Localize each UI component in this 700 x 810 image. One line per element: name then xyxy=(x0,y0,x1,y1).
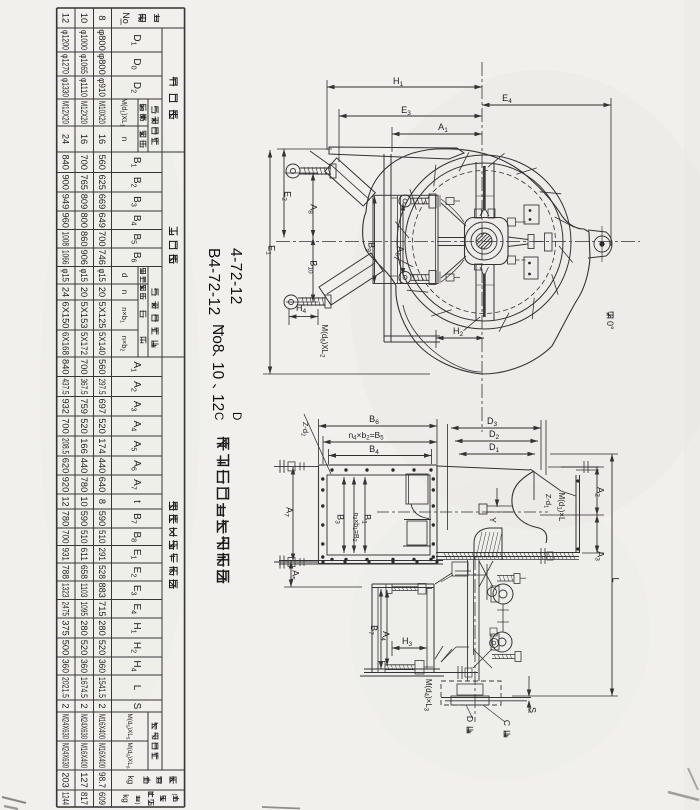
svg-text:520: 520 xyxy=(79,640,89,656)
svg-text:840: 840 xyxy=(61,359,71,375)
svg-text:(: ( xyxy=(171,794,177,796)
svg-text:510: 510 xyxy=(97,530,107,544)
svg-text:208.5: 208.5 xyxy=(61,438,71,454)
svg-text:1066: 1066 xyxy=(61,250,71,265)
svg-text:2021.5: 2021.5 xyxy=(61,677,71,698)
svg-text:No8: No8 xyxy=(209,324,226,352)
svg-text:5X125: 5X125 xyxy=(97,302,107,329)
svg-text:φ1270: φ1270 xyxy=(61,54,71,74)
svg-text:440: 440 xyxy=(79,458,89,474)
svg-text:360: 360 xyxy=(79,659,89,673)
svg-text:669: 669 xyxy=(97,194,107,210)
svg-text:949: 949 xyxy=(61,194,71,210)
svg-text:174: 174 xyxy=(97,438,107,454)
svg-text:M24X630: M24X630 xyxy=(61,743,71,768)
svg-text:B4-72-12: B4-72-12 xyxy=(205,248,222,316)
svg-text:746: 746 xyxy=(97,249,107,265)
svg-text:n3×b1=B2: n3×b1=B2 xyxy=(351,513,359,542)
svg-text:φ1065: φ1065 xyxy=(79,54,89,74)
svg-text:920: 920 xyxy=(61,477,71,493)
svg-text:840: 840 xyxy=(61,154,71,170)
svg-text:12: 12 xyxy=(209,394,226,411)
svg-text:280: 280 xyxy=(97,620,107,636)
svg-text:8: 8 xyxy=(97,15,107,20)
svg-text:6X150: 6X150 xyxy=(61,302,71,329)
svg-text:297.5: 297.5 xyxy=(97,379,107,395)
svg-text:780: 780 xyxy=(79,477,89,493)
svg-text:2: 2 xyxy=(61,703,71,708)
svg-text:24: 24 xyxy=(61,287,71,297)
svg-text:440: 440 xyxy=(97,458,107,474)
svg-text:620: 620 xyxy=(61,458,71,474)
svg-text:L: L xyxy=(611,577,621,582)
svg-text:C: C xyxy=(212,412,224,420)
svg-text:1103: 1103 xyxy=(79,583,89,598)
svg-text:280: 280 xyxy=(79,620,89,636)
svg-text:900: 900 xyxy=(61,174,71,190)
svg-text:931: 931 xyxy=(61,547,71,561)
svg-text:D: D xyxy=(230,412,242,420)
svg-text:780: 780 xyxy=(61,511,71,527)
svg-text:S: S xyxy=(528,707,538,713)
svg-text:611: 611 xyxy=(79,547,89,561)
svg-text:M(d5)XL5: M(d5)XL5 xyxy=(126,714,132,741)
svg-text:1323: 1323 xyxy=(61,583,71,598)
svg-text:1008: 1008 xyxy=(61,232,71,247)
svg-text:500: 500 xyxy=(61,640,71,656)
svg-text:715: 715 xyxy=(97,601,107,617)
svg-text:kg: kg xyxy=(126,776,135,784)
svg-text:d: d xyxy=(120,273,129,277)
svg-text:625: 625 xyxy=(97,174,107,190)
svg-text:883: 883 xyxy=(97,582,107,598)
svg-text:375: 375 xyxy=(61,620,71,636)
svg-text:1095: 1095 xyxy=(79,602,89,617)
svg-text:M16X400: M16X400 xyxy=(97,743,107,768)
svg-text:No: No xyxy=(121,12,131,24)
svg-text:t: t xyxy=(131,500,142,503)
svg-text:860: 860 xyxy=(79,231,89,247)
svg-text:M12X20: M12X20 xyxy=(61,101,71,124)
svg-text:L: L xyxy=(131,685,142,691)
svg-text:765: 765 xyxy=(79,174,89,190)
svg-text:360: 360 xyxy=(61,659,71,673)
svg-text:203: 203 xyxy=(61,772,71,788)
svg-text:20: 20 xyxy=(97,287,107,297)
svg-text:560: 560 xyxy=(97,154,107,170)
svg-text:6X168: 6X168 xyxy=(61,332,71,355)
svg-text:5X153: 5X153 xyxy=(79,302,89,329)
svg-text:590: 590 xyxy=(97,511,107,527)
svg-text:649: 649 xyxy=(97,212,107,228)
svg-text:16: 16 xyxy=(97,134,107,144)
svg-text:D: D xyxy=(465,716,475,722)
svg-text:906: 906 xyxy=(79,249,89,265)
svg-text:700: 700 xyxy=(79,359,89,375)
svg-text:1674.5: 1674.5 xyxy=(79,677,89,698)
svg-text:817: 817 xyxy=(79,792,89,805)
svg-text:520: 520 xyxy=(97,640,107,656)
svg-text:M(d4)×L3: M(d4)×L3 xyxy=(423,679,434,712)
svg-text:10: 10 xyxy=(79,13,89,23)
svg-text:12: 12 xyxy=(61,496,71,506)
svg-text:291: 291 xyxy=(97,547,107,561)
svg-text:φ1330: φ1330 xyxy=(61,78,71,97)
svg-text:759: 759 xyxy=(79,398,89,414)
svg-text:M24X630: M24X630 xyxy=(79,714,89,739)
svg-text:φ1110: φ1110 xyxy=(79,78,89,97)
svg-text:1244: 1244 xyxy=(61,792,71,805)
svg-text:590: 590 xyxy=(79,511,89,527)
svg-text:M16X400: M16X400 xyxy=(97,714,107,739)
svg-text:16: 16 xyxy=(79,134,89,144)
svg-text:kg: kg xyxy=(121,794,130,802)
svg-text:800: 800 xyxy=(79,212,89,228)
svg-text:φ15: φ15 xyxy=(79,268,89,282)
svg-text:12: 12 xyxy=(61,13,71,23)
svg-text:8: 8 xyxy=(97,499,107,504)
svg-text:700: 700 xyxy=(61,418,71,434)
svg-text:M10X20: M10X20 xyxy=(97,101,107,124)
svg-text:700: 700 xyxy=(97,231,107,247)
svg-text:520: 520 xyxy=(79,418,89,434)
svg-text:520: 520 xyxy=(97,418,107,434)
svg-text:2: 2 xyxy=(97,703,107,708)
svg-text:5X172: 5X172 xyxy=(79,332,89,355)
svg-text:20: 20 xyxy=(79,287,89,297)
svg-text:M12X20: M12X20 xyxy=(79,101,89,124)
svg-text:C: C xyxy=(502,720,512,726)
svg-text:φ910: φ910 xyxy=(97,78,107,97)
svg-text:609: 609 xyxy=(97,792,107,805)
svg-text:24: 24 xyxy=(61,134,71,144)
svg-text:528: 528 xyxy=(97,565,107,579)
svg-text:φ15: φ15 xyxy=(97,268,107,282)
svg-text:2475: 2475 xyxy=(61,602,71,617)
svg-text:960: 960 xyxy=(61,212,71,228)
svg-text:M24X630: M24X630 xyxy=(61,714,71,739)
svg-text:φ1200: φ1200 xyxy=(61,30,71,50)
svg-text:φ15: φ15 xyxy=(61,268,71,282)
svg-text:φ800: φ800 xyxy=(97,53,107,75)
svg-text:n: n xyxy=(120,290,129,294)
svg-text:166: 166 xyxy=(79,438,89,454)
svg-text:437.5: 437.5 xyxy=(61,379,71,395)
svg-text:S: S xyxy=(131,703,142,710)
svg-text:98.7: 98.7 xyxy=(97,772,107,788)
svg-text:M(d6)XL2: M(d6)XL2 xyxy=(319,325,330,359)
svg-text:510: 510 xyxy=(79,530,89,544)
svg-text:700: 700 xyxy=(79,154,89,170)
svg-text:4-72-12: 4-72-12 xyxy=(227,248,244,305)
svg-text:M(d6)XL6: M(d6)XL6 xyxy=(126,743,132,770)
svg-text:Y: Y xyxy=(488,517,498,523)
svg-text:M16X400: M16X400 xyxy=(79,743,89,768)
svg-text:788: 788 xyxy=(61,565,71,579)
svg-text:127: 127 xyxy=(79,772,89,788)
svg-text:640: 640 xyxy=(97,477,107,493)
svg-text:10: 10 xyxy=(209,362,226,380)
svg-text:n: n xyxy=(120,137,129,141)
svg-text:809: 809 xyxy=(79,194,89,210)
svg-text:φ800: φ800 xyxy=(97,29,107,51)
svg-text:932: 932 xyxy=(61,398,71,414)
svg-text:5X140: 5X140 xyxy=(97,332,107,355)
svg-text:): ) xyxy=(134,803,140,805)
svg-text:2: 2 xyxy=(79,703,89,708)
svg-text:1541.5: 1541.5 xyxy=(97,677,107,698)
svg-text:φ1000: φ1000 xyxy=(79,30,89,50)
svg-text:367.5: 367.5 xyxy=(79,379,89,395)
svg-text:697: 697 xyxy=(97,398,107,414)
svg-text:658: 658 xyxy=(79,565,89,579)
svg-text:360: 360 xyxy=(97,659,107,673)
svg-text:10: 10 xyxy=(79,496,89,506)
svg-text:560: 560 xyxy=(97,359,107,375)
svg-text:700: 700 xyxy=(61,530,71,544)
svg-text:0°: 0° xyxy=(605,321,615,330)
